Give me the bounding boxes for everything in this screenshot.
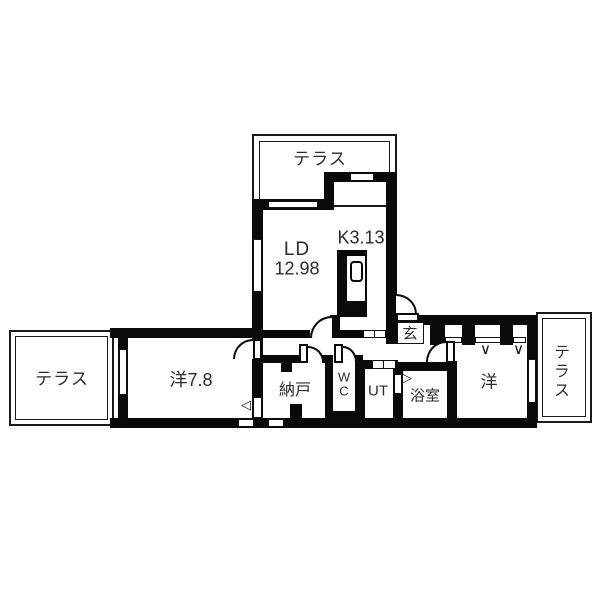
terrace-top-label: テラス [293,145,347,170]
wall-under-wc [330,411,362,419]
door-arc-west-room-right [426,341,446,362]
window-bottom-wall-a [238,419,254,427]
opening-hall-panel-b [374,330,386,338]
door-leaf-entrance [396,313,419,322]
window-west-room-right [528,359,536,403]
window-terrace-bottom-wall [268,201,318,208]
wall-pillar-3 [500,325,513,345]
door-leaf-storage [299,344,308,363]
door-arc-ld [310,316,332,338]
wall-pillar-2 [462,325,475,345]
kitchen-sink [350,261,363,282]
door-leaf-west-room-right [446,341,455,363]
ut-label: UT [368,383,388,400]
entrance-label: 玄 [402,323,417,344]
wall-left-main [252,199,263,428]
door-arc-storage [308,346,324,362]
bathroom-label: 浴室 [410,385,440,406]
terrace-right-label: テラス [547,344,571,401]
door-direction-left-icon: ◁ [241,398,251,411]
wc-label: WC [337,371,352,400]
wall-west-room-left-top [110,328,263,338]
wall-bottom-main [110,418,537,428]
opening-ut-panel-b [383,360,396,369]
west-room-left-label: 洋7.8 [169,366,212,392]
door-arc-wc [343,346,357,362]
window-top-right-wall [350,173,374,181]
storage-label: 納戸 [279,376,311,400]
window-west-room-left [119,349,127,395]
door-leaf-west-room-left [253,339,262,360]
wall-entrance-top [417,315,537,325]
door-arc-entrance [396,294,417,314]
window-bottom-wall-b [268,419,284,427]
door-arc-west-room-left [233,339,253,359]
floor-plan: テラス LD 12.98 K3.13 玄 テラス 洋7.8 納戸 WC UT 浴… [0,0,600,600]
opening-storage-slide [253,397,262,418]
window-open-mark-2: ∨ [513,342,524,357]
west-room-right-label: 洋 [481,368,498,393]
wall-wc-left [325,355,333,418]
ld-size-label: 12.98 [274,259,319,280]
door-leaf-wc [334,344,343,363]
opening-bath-door [394,374,402,394]
window-ld-left [253,239,262,292]
terrace-left-label: テラス [35,365,89,390]
wall-wc-right [355,355,363,418]
door-direction-right-icon: ▷ [402,371,412,384]
wall-storage-notch-bottom [290,404,302,418]
kitchen-label: K3.13 [337,228,384,249]
window-open-mark-1: ∨ [480,342,491,357]
wall-storage-notch-top [281,355,292,372]
